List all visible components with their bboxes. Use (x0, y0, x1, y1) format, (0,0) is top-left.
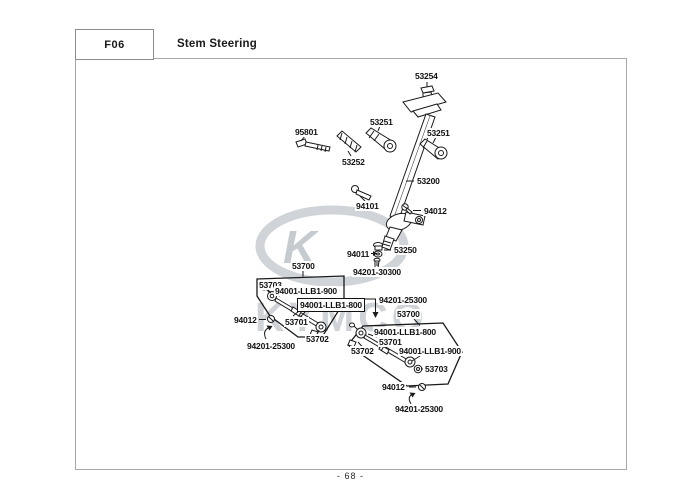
part-label-l-25300-left: 94201-25300 (246, 341, 296, 351)
part-label-l-53251-right: 53251 (426, 128, 451, 138)
footer-page-number: - 68 - (75, 471, 626, 481)
catalog-page: { "page": { "code": "F06", "title": "Ste… (0, 0, 700, 495)
part-label-l-53700-right: 53700 (396, 309, 421, 319)
spring-53252-part (337, 131, 361, 152)
part-label-l-llb800-left: 94001-LLB1-800 (297, 298, 365, 312)
part-label-l-llb800-right: 94001-LLB1-800 (373, 327, 437, 337)
part-label-l-53254: 53254 (414, 71, 439, 81)
part-label-l-53251-left: 53251 (369, 117, 394, 127)
part-label-l-53200: 53200 (416, 176, 441, 186)
part-label-l-94201-30300: 94201-30300 (352, 267, 402, 277)
part-label-l-53701-left: 53701 (284, 317, 309, 327)
part-label-l-94012-upper: 94012 (423, 206, 448, 216)
nut-53250-part (374, 243, 383, 251)
part-label-l-llb900-left: 94001-LLB1-900 (274, 286, 338, 296)
part-label-l-53703-right: 53703 (424, 364, 449, 374)
screw-94012-left-part (268, 316, 275, 323)
part-label-l-94011: 94011 (346, 249, 370, 259)
section-code-box: F06 (75, 29, 154, 60)
part-label-l-53250: 53250 (393, 245, 418, 255)
part-label-l-94012-bottom: 94012 (381, 382, 406, 392)
part-label-l-53702-left: 53702 (305, 334, 330, 344)
part-label-l-95801: 95801 (294, 127, 319, 137)
section-code: F06 (104, 39, 124, 51)
part-label-l-llb900-right: 94001-LLB1-900 (398, 346, 462, 356)
part-label-l-53700-left: 53700 (291, 261, 316, 271)
sleeve-53251-left-part (366, 128, 396, 152)
part-label-l-53702-right: 53702 (350, 346, 375, 356)
screw-94012-bottom-part (419, 384, 426, 391)
part-label-l-25300-bottom: 94201-25300 (394, 404, 444, 414)
steering-stem-part (382, 86, 446, 250)
part-label-l-94012-left: 94012 (233, 315, 258, 325)
page-title: Stem Steering (177, 38, 257, 50)
exploded-diagram (0, 0, 700, 495)
part-label-l-94101: 94101 (355, 201, 380, 211)
part-label-l-25300-mid: 94201-25300 (378, 295, 428, 305)
part-label-l-53252: 53252 (341, 157, 366, 167)
